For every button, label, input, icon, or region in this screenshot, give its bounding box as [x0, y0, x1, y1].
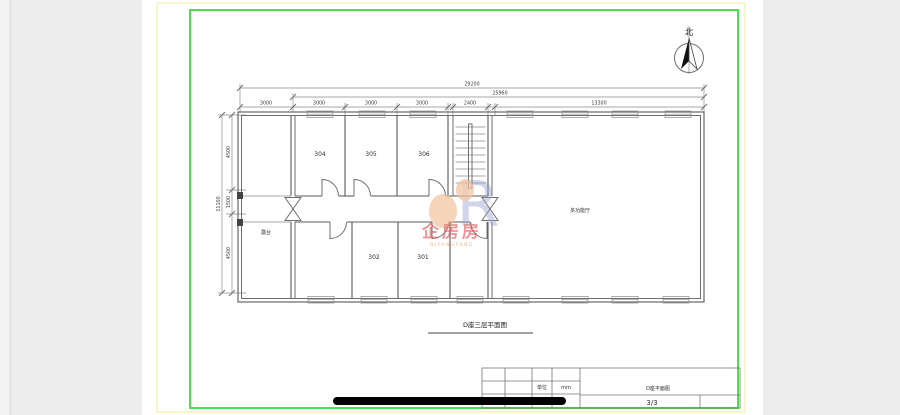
- room-label-301: 301: [417, 254, 429, 261]
- room-label-306: 306: [418, 151, 430, 158]
- dim-label-left-overall: 11100: [216, 196, 222, 211]
- unit-value: mm: [561, 385, 571, 391]
- redaction-bar: [333, 397, 566, 405]
- plan-title: D座三层平面图: [463, 320, 507, 329]
- north-label: 北: [685, 28, 694, 38]
- dim-label-left-seg1: 4500: [226, 146, 232, 158]
- room-label-304: 304: [314, 151, 326, 158]
- column-fill: [237, 192, 243, 199]
- dim-label-seg2: 3000: [313, 101, 325, 107]
- watermark-brand: 企房房: [421, 221, 482, 242]
- room-label-305: 305: [365, 151, 377, 158]
- unit-label: 单位: [537, 384, 547, 391]
- drawing-title: D座平面图: [646, 385, 670, 392]
- dim-label-seg1: 3000: [260, 101, 272, 107]
- room-label-302: 302: [368, 254, 380, 261]
- cad-viewer-canvas: 北 29200 25960 3000 3000 3000 3000 2400 1: [0, 0, 900, 415]
- dim-label-overall: 29200: [464, 82, 479, 88]
- dim-label-left-seg2: 1500: [226, 196, 232, 208]
- watermark-brand-latin: QIFANGFANG: [430, 242, 474, 248]
- sheet-number: 3/3: [646, 399, 657, 407]
- column-fill: [237, 219, 243, 226]
- dim-label-seg3: 3000: [365, 101, 377, 107]
- drawing-surface: 北 29200 25960 3000 3000 3000 3000 2400 1: [0, 0, 900, 415]
- dim-label-sub: 25960: [492, 91, 507, 97]
- dim-label-left-seg3: 4500: [226, 247, 232, 259]
- dim-label-seg4: 3000: [416, 101, 428, 107]
- dim-label-seg6: 13300: [591, 101, 606, 107]
- left-gutter: [0, 0, 10, 415]
- hall-label: 多功能厅: [570, 207, 590, 214]
- terrace-label: 露台: [261, 229, 271, 236]
- watermark-blob-small: [456, 179, 474, 201]
- dim-label-seg5: 2400: [464, 101, 476, 107]
